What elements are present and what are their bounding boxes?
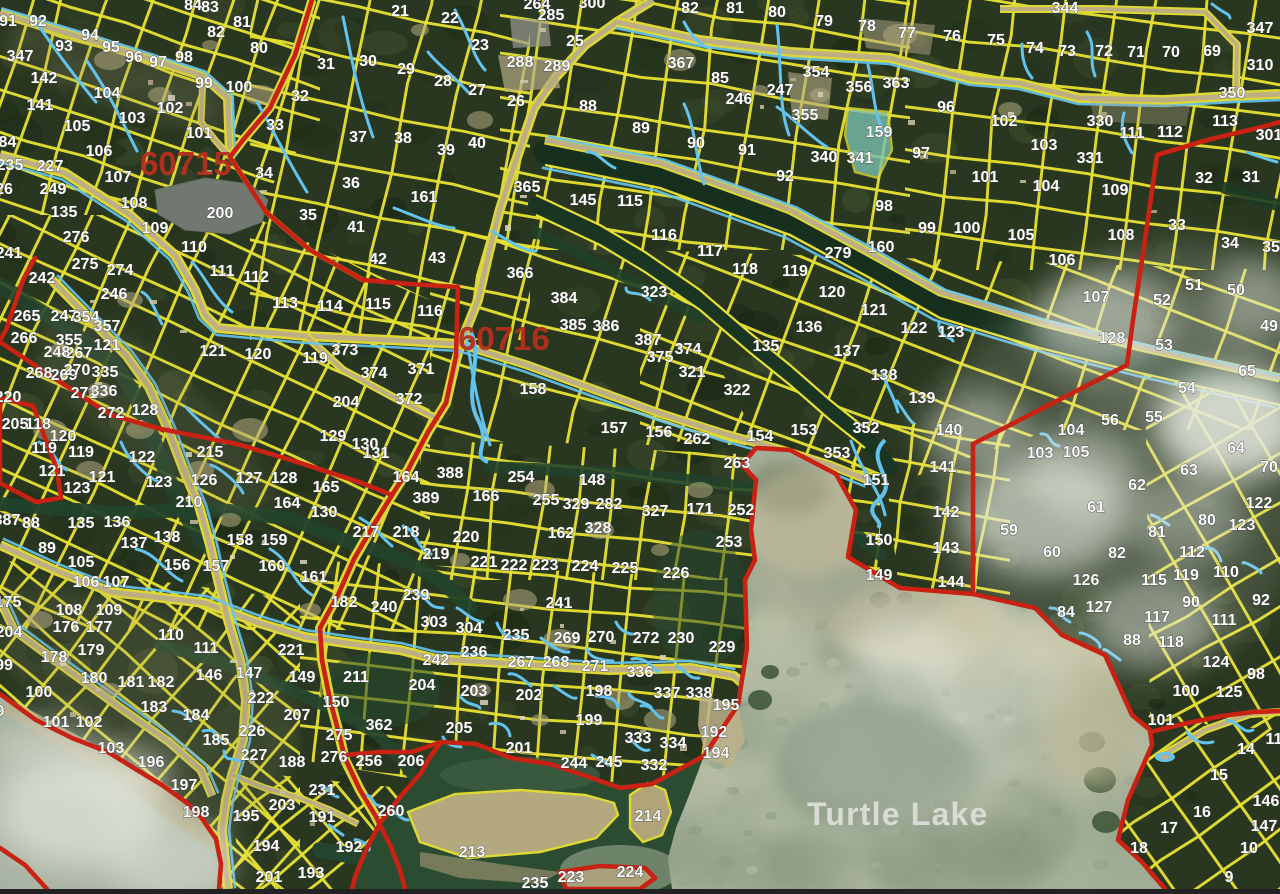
svg-text:271: 271 — [582, 658, 609, 675]
svg-text:241: 241 — [0, 245, 22, 262]
svg-text:38: 38 — [394, 130, 412, 147]
svg-text:201: 201 — [506, 740, 533, 757]
svg-text:124: 124 — [1203, 654, 1230, 671]
svg-text:153: 153 — [791, 422, 818, 439]
svg-text:276: 276 — [63, 229, 90, 246]
svg-text:199: 199 — [576, 712, 603, 729]
svg-text:141: 141 — [27, 97, 54, 114]
svg-text:60716: 60716 — [458, 320, 550, 357]
svg-text:146: 146 — [1253, 793, 1280, 810]
svg-text:137: 137 — [121, 535, 148, 552]
svg-text:204: 204 — [0, 624, 22, 641]
svg-text:126: 126 — [1073, 572, 1100, 589]
svg-text:99: 99 — [0, 657, 13, 674]
svg-text:194: 194 — [253, 838, 280, 855]
svg-text:201: 201 — [256, 869, 283, 886]
svg-text:252: 252 — [728, 502, 755, 519]
svg-text:389: 389 — [413, 490, 440, 507]
svg-text:158: 158 — [520, 381, 547, 398]
svg-text:220: 220 — [453, 529, 480, 546]
svg-text:80: 80 — [768, 4, 786, 21]
svg-text:64: 64 — [1227, 440, 1245, 457]
svg-text:143: 143 — [933, 540, 960, 557]
svg-text:122: 122 — [1246, 495, 1273, 512]
svg-text:386: 386 — [593, 318, 620, 335]
svg-text:110: 110 — [181, 239, 207, 256]
svg-text:253: 253 — [716, 534, 743, 551]
svg-text:82: 82 — [207, 24, 225, 41]
svg-text:164: 164 — [393, 469, 420, 486]
svg-text:256: 256 — [356, 753, 383, 770]
svg-text:79: 79 — [815, 13, 833, 30]
svg-text:384: 384 — [0, 134, 16, 151]
svg-text:91: 91 — [738, 142, 756, 159]
svg-text:192: 192 — [336, 839, 363, 856]
svg-text:120: 120 — [819, 284, 846, 301]
svg-text:117: 117 — [1144, 609, 1170, 626]
svg-text:115: 115 — [365, 296, 391, 313]
svg-text:123: 123 — [938, 324, 965, 341]
svg-text:185: 185 — [203, 732, 230, 749]
svg-text:160: 160 — [259, 558, 286, 575]
svg-text:82: 82 — [681, 0, 699, 17]
svg-text:355: 355 — [792, 107, 819, 124]
svg-text:100: 100 — [954, 220, 981, 237]
svg-text:94: 94 — [81, 27, 99, 44]
svg-text:282: 282 — [596, 496, 623, 513]
svg-text:236: 236 — [461, 644, 488, 661]
svg-text:356: 356 — [846, 79, 873, 96]
svg-text:60: 60 — [1043, 544, 1061, 561]
svg-text:366: 366 — [507, 265, 534, 282]
svg-text:223: 223 — [532, 557, 559, 574]
svg-text:184: 184 — [183, 707, 210, 724]
svg-text:272: 272 — [633, 630, 660, 647]
svg-text:159: 159 — [866, 124, 893, 141]
svg-text:330: 330 — [1087, 113, 1114, 130]
svg-text:388: 388 — [437, 465, 464, 482]
svg-text:34: 34 — [1221, 235, 1239, 252]
svg-text:344: 344 — [1052, 0, 1079, 17]
svg-text:9: 9 — [0, 703, 5, 720]
svg-text:119: 119 — [68, 444, 94, 461]
svg-text:164: 164 — [274, 495, 301, 512]
svg-text:332: 332 — [641, 757, 668, 774]
svg-text:225: 225 — [612, 560, 639, 577]
svg-text:222: 222 — [501, 557, 528, 574]
svg-text:118: 118 — [732, 261, 758, 278]
svg-text:331: 331 — [1077, 150, 1104, 167]
svg-text:135: 135 — [753, 338, 780, 355]
svg-text:150: 150 — [866, 532, 893, 549]
svg-text:268: 268 — [26, 365, 53, 382]
svg-text:363: 363 — [883, 75, 910, 92]
svg-text:387: 387 — [0, 512, 20, 529]
svg-text:353: 353 — [824, 445, 851, 462]
svg-text:367: 367 — [668, 55, 695, 72]
svg-text:103: 103 — [1031, 137, 1058, 154]
svg-text:70: 70 — [1260, 459, 1278, 476]
svg-text:350: 350 — [1219, 85, 1246, 102]
svg-text:165: 165 — [313, 479, 340, 496]
svg-text:123: 123 — [64, 480, 91, 497]
svg-text:106: 106 — [1049, 252, 1076, 269]
svg-text:113: 113 — [1212, 113, 1238, 130]
svg-text:347: 347 — [1247, 20, 1274, 37]
svg-text:102: 102 — [991, 113, 1018, 130]
svg-text:62: 62 — [1128, 477, 1146, 494]
svg-text:128: 128 — [132, 402, 159, 419]
svg-text:130: 130 — [311, 504, 338, 521]
svg-text:43: 43 — [428, 250, 446, 267]
svg-text:31: 31 — [1242, 169, 1260, 186]
svg-text:210: 210 — [176, 494, 203, 511]
svg-text:80: 80 — [1198, 512, 1216, 529]
svg-text:105: 105 — [1008, 227, 1035, 244]
svg-text:122: 122 — [129, 449, 156, 466]
svg-text:248: 248 — [44, 344, 71, 361]
svg-text:198: 198 — [586, 683, 613, 700]
svg-text:374: 374 — [675, 341, 702, 358]
svg-text:73: 73 — [1058, 43, 1076, 60]
svg-text:99: 99 — [918, 220, 936, 237]
svg-text:75: 75 — [987, 32, 1005, 49]
svg-text:235: 235 — [522, 875, 549, 889]
svg-text:384: 384 — [551, 290, 578, 307]
svg-text:49: 49 — [1260, 318, 1278, 335]
svg-text:362: 362 — [366, 717, 393, 734]
svg-text:275: 275 — [72, 256, 99, 273]
svg-text:108: 108 — [121, 195, 148, 212]
svg-text:104: 104 — [94, 85, 121, 102]
svg-text:144: 144 — [938, 574, 965, 591]
svg-text:304: 304 — [456, 620, 483, 637]
svg-text:120: 120 — [50, 428, 77, 445]
svg-text:23: 23 — [471, 37, 489, 54]
svg-text:101: 101 — [972, 169, 999, 186]
svg-text:141: 141 — [930, 459, 957, 476]
svg-text:100: 100 — [226, 79, 253, 96]
svg-text:110: 110 — [158, 627, 184, 644]
svg-text:26: 26 — [0, 181, 13, 198]
svg-text:111: 111 — [210, 263, 235, 280]
svg-text:77: 77 — [898, 25, 916, 42]
svg-text:33: 33 — [1168, 217, 1186, 234]
svg-text:22: 22 — [441, 10, 459, 27]
svg-text:121: 121 — [861, 302, 888, 319]
svg-text:93: 93 — [55, 38, 73, 55]
svg-text:17: 17 — [1160, 820, 1178, 837]
svg-text:131: 131 — [363, 445, 390, 462]
svg-text:335: 335 — [92, 364, 119, 381]
svg-text:125: 125 — [1216, 684, 1243, 701]
svg-text:156: 156 — [646, 424, 673, 441]
svg-text:214: 214 — [635, 808, 662, 825]
svg-text:88: 88 — [22, 515, 40, 532]
svg-text:239: 239 — [403, 587, 430, 604]
svg-text:235: 235 — [0, 157, 23, 174]
svg-text:166: 166 — [473, 488, 500, 505]
svg-text:142: 142 — [31, 70, 58, 87]
svg-text:113: 113 — [272, 295, 298, 312]
svg-text:121: 121 — [200, 343, 227, 360]
svg-text:101: 101 — [186, 125, 213, 142]
svg-text:109: 109 — [96, 602, 123, 619]
svg-text:347: 347 — [7, 48, 34, 65]
svg-text:157: 157 — [601, 420, 628, 437]
svg-text:107: 107 — [105, 169, 132, 186]
svg-text:207: 207 — [284, 707, 311, 724]
svg-text:195: 195 — [233, 808, 260, 825]
svg-text:162: 162 — [548, 525, 575, 542]
svg-text:195: 195 — [713, 697, 740, 714]
svg-text:135: 135 — [51, 204, 78, 221]
svg-text:116: 116 — [651, 227, 677, 244]
svg-text:97: 97 — [149, 54, 167, 71]
svg-text:119: 119 — [782, 263, 808, 280]
svg-text:338: 338 — [686, 685, 713, 702]
svg-text:123: 123 — [146, 474, 173, 491]
svg-text:102: 102 — [76, 714, 103, 731]
svg-text:128: 128 — [271, 470, 298, 487]
svg-text:82: 82 — [1108, 545, 1126, 562]
svg-text:270: 270 — [64, 362, 91, 379]
svg-text:14: 14 — [1237, 741, 1255, 758]
svg-text:226: 226 — [663, 565, 690, 582]
svg-text:129: 129 — [320, 428, 347, 445]
svg-text:60715: 60715 — [140, 145, 232, 182]
svg-text:323: 323 — [641, 284, 668, 301]
svg-text:274: 274 — [107, 262, 134, 279]
svg-text:115: 115 — [617, 193, 643, 210]
svg-text:123: 123 — [1229, 517, 1256, 534]
svg-text:373: 373 — [332, 342, 359, 359]
svg-text:217: 217 — [353, 524, 380, 541]
svg-text:Turtle Lake: Turtle Lake — [807, 796, 989, 832]
svg-text:374: 374 — [361, 365, 388, 382]
svg-text:96: 96 — [125, 49, 143, 66]
svg-text:322: 322 — [724, 382, 751, 399]
svg-text:111: 111 — [1120, 125, 1145, 142]
svg-text:32: 32 — [1195, 170, 1213, 187]
svg-text:202: 202 — [516, 687, 543, 704]
svg-text:222: 222 — [248, 690, 275, 707]
svg-text:140: 140 — [936, 422, 963, 439]
svg-text:40: 40 — [468, 135, 486, 152]
svg-text:127: 127 — [236, 470, 263, 487]
svg-text:95: 95 — [102, 39, 120, 56]
svg-text:213: 213 — [459, 844, 486, 861]
svg-text:300: 300 — [579, 0, 606, 12]
svg-text:211: 211 — [343, 669, 369, 686]
svg-text:63: 63 — [1180, 462, 1198, 479]
svg-text:249: 249 — [40, 181, 67, 198]
svg-text:241: 241 — [546, 595, 573, 612]
svg-text:220: 220 — [0, 389, 21, 406]
svg-text:88: 88 — [579, 98, 597, 115]
svg-text:104: 104 — [1058, 422, 1085, 439]
svg-text:81: 81 — [1148, 524, 1166, 541]
svg-text:81: 81 — [233, 14, 251, 31]
svg-text:224: 224 — [617, 864, 644, 881]
svg-text:268: 268 — [543, 654, 570, 671]
svg-text:260: 260 — [378, 803, 405, 820]
svg-text:197: 197 — [171, 777, 198, 794]
svg-text:215: 215 — [197, 444, 224, 461]
svg-text:21: 21 — [391, 3, 409, 20]
svg-text:33: 33 — [266, 117, 284, 134]
svg-text:92: 92 — [776, 168, 794, 185]
svg-text:90: 90 — [687, 135, 705, 152]
svg-text:154: 154 — [747, 428, 774, 445]
svg-text:30: 30 — [359, 53, 377, 70]
svg-text:161: 161 — [411, 189, 438, 206]
svg-text:221: 221 — [278, 642, 305, 659]
svg-text:303: 303 — [421, 614, 448, 631]
svg-text:53: 53 — [1155, 337, 1173, 354]
svg-text:246: 246 — [726, 91, 753, 108]
svg-text:119: 119 — [1173, 567, 1199, 584]
svg-text:354: 354 — [803, 64, 830, 81]
svg-text:240: 240 — [371, 599, 398, 616]
svg-text:54: 54 — [1178, 380, 1196, 397]
svg-text:138: 138 — [154, 529, 181, 546]
svg-text:247: 247 — [767, 82, 794, 99]
svg-text:55: 55 — [1145, 409, 1163, 426]
svg-text:11: 11 — [1266, 731, 1280, 748]
svg-text:100: 100 — [26, 684, 53, 701]
svg-text:203: 203 — [269, 797, 296, 814]
svg-text:194: 194 — [703, 745, 730, 762]
svg-text:103: 103 — [119, 110, 146, 127]
svg-text:80: 80 — [250, 40, 268, 57]
svg-text:176: 176 — [53, 619, 80, 636]
svg-text:118: 118 — [25, 416, 51, 433]
svg-text:204: 204 — [409, 677, 436, 694]
svg-text:97: 97 — [912, 145, 930, 162]
svg-text:230: 230 — [668, 630, 695, 647]
svg-text:229: 229 — [709, 639, 736, 656]
svg-text:119: 119 — [302, 350, 328, 367]
svg-text:114: 114 — [317, 298, 343, 315]
svg-text:110: 110 — [1213, 564, 1239, 581]
svg-text:242: 242 — [29, 270, 56, 287]
svg-text:98: 98 — [875, 198, 893, 215]
svg-text:158: 158 — [227, 532, 254, 549]
svg-text:37: 37 — [349, 129, 367, 146]
svg-text:92: 92 — [29, 13, 47, 30]
svg-text:333: 333 — [625, 730, 652, 747]
svg-text:105: 105 — [68, 554, 95, 571]
svg-text:157: 157 — [203, 558, 230, 575]
svg-text:103: 103 — [98, 740, 125, 757]
svg-text:122: 122 — [901, 320, 928, 337]
svg-text:149: 149 — [866, 567, 893, 584]
svg-text:227: 227 — [241, 747, 268, 764]
svg-text:89: 89 — [38, 540, 56, 557]
svg-text:15: 15 — [1210, 767, 1228, 784]
svg-text:139: 139 — [909, 390, 936, 407]
svg-text:81: 81 — [726, 0, 744, 17]
svg-text:36: 36 — [342, 175, 360, 192]
svg-text:115: 115 — [1141, 572, 1167, 589]
svg-text:105: 105 — [1063, 444, 1090, 461]
svg-text:25: 25 — [566, 33, 584, 50]
svg-text:76: 76 — [943, 28, 961, 45]
svg-text:193: 193 — [298, 865, 325, 882]
svg-text:191: 191 — [309, 809, 336, 826]
svg-text:116: 116 — [417, 303, 443, 320]
svg-text:35: 35 — [1262, 239, 1280, 256]
svg-text:51: 51 — [1185, 277, 1203, 294]
svg-text:352: 352 — [853, 420, 880, 437]
svg-text:262: 262 — [684, 431, 711, 448]
svg-text:107: 107 — [1083, 289, 1110, 306]
svg-text:111: 111 — [194, 640, 219, 657]
svg-text:270: 270 — [588, 629, 615, 646]
svg-text:52: 52 — [1153, 292, 1171, 309]
svg-text:310: 310 — [1247, 57, 1274, 74]
svg-text:136: 136 — [796, 319, 823, 336]
svg-text:182: 182 — [331, 594, 358, 611]
svg-text:83: 83 — [201, 0, 219, 16]
svg-text:227: 227 — [37, 158, 64, 175]
svg-text:245: 245 — [596, 754, 623, 771]
svg-text:90: 90 — [1182, 594, 1200, 611]
svg-text:182: 182 — [148, 674, 175, 691]
svg-text:128: 128 — [1099, 330, 1126, 347]
svg-text:147: 147 — [1251, 818, 1278, 835]
svg-text:136: 136 — [104, 514, 131, 531]
svg-text:327: 327 — [642, 503, 669, 520]
svg-text:42: 42 — [369, 251, 387, 268]
svg-text:231: 231 — [309, 782, 336, 799]
svg-text:138: 138 — [871, 367, 898, 384]
svg-text:337: 337 — [654, 685, 681, 702]
svg-text:41: 41 — [347, 219, 365, 236]
svg-text:35: 35 — [299, 207, 317, 224]
svg-text:26: 26 — [507, 93, 525, 110]
svg-text:105: 105 — [64, 118, 91, 135]
svg-text:84: 84 — [1057, 604, 1075, 621]
svg-text:137: 137 — [834, 343, 861, 360]
svg-text:109: 109 — [142, 220, 169, 237]
svg-text:255: 255 — [533, 492, 560, 509]
svg-text:266: 266 — [11, 330, 38, 347]
svg-text:254: 254 — [508, 469, 535, 486]
svg-text:34: 34 — [255, 165, 273, 182]
svg-text:74: 74 — [1026, 40, 1044, 57]
svg-text:204: 204 — [333, 394, 360, 411]
svg-text:96: 96 — [937, 99, 955, 116]
svg-text:269: 269 — [554, 630, 581, 647]
svg-text:101: 101 — [43, 714, 70, 731]
svg-text:387: 387 — [635, 332, 662, 349]
svg-text:117: 117 — [697, 243, 723, 260]
svg-text:148: 148 — [579, 472, 606, 489]
svg-text:160: 160 — [868, 239, 895, 256]
svg-text:10: 10 — [1240, 840, 1258, 857]
svg-text:244: 244 — [561, 755, 588, 772]
svg-text:329: 329 — [563, 496, 590, 513]
svg-text:99: 99 — [195, 75, 213, 92]
svg-text:121: 121 — [39, 463, 66, 480]
svg-text:61: 61 — [1087, 499, 1105, 516]
svg-text:71: 71 — [1127, 44, 1145, 61]
svg-text:242: 242 — [423, 652, 450, 669]
svg-text:265: 265 — [14, 308, 41, 325]
svg-text:28: 28 — [434, 73, 452, 90]
